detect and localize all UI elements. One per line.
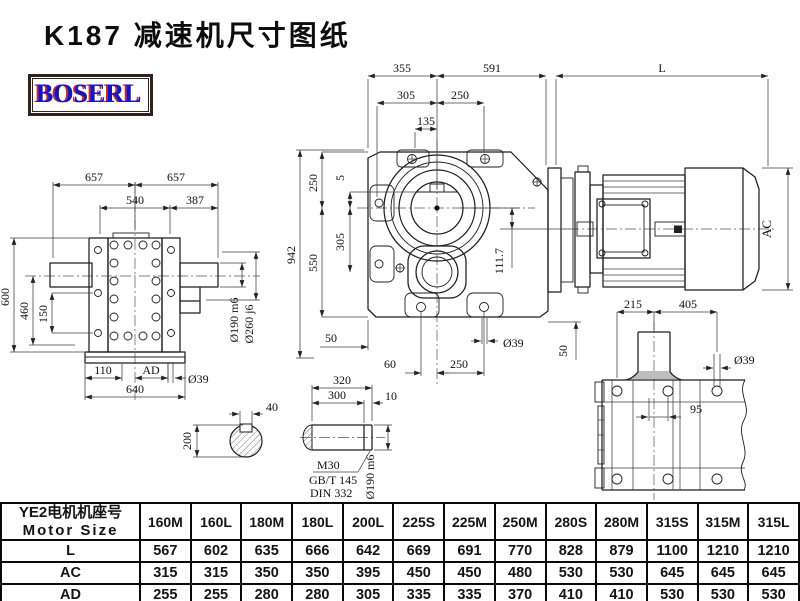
cell-l-225s: 669 — [393, 540, 444, 562]
dim-460: 460 — [17, 302, 31, 320]
label-din332: DIN 332 — [310, 486, 352, 500]
label-m30: M30 — [317, 458, 340, 472]
cell-ac-280m: 530 — [596, 562, 647, 584]
cell-ad-315m: 530 — [698, 584, 749, 601]
brand-logo: BOSERL — [28, 74, 153, 116]
column-header-315s: 315S — [647, 503, 698, 540]
row-label-ad: AD — [1, 584, 140, 601]
cell-ad-180m: 280 — [241, 584, 292, 601]
shaft-section-view: 40 200 — [180, 400, 278, 457]
dim-95: 95 — [690, 402, 702, 416]
table-row-ac: AC31531535035039545045048053053064564564… — [1, 562, 799, 584]
dim-387: 387 — [186, 193, 204, 207]
dim-550: 550 — [306, 254, 320, 272]
dim-200: 200 — [180, 432, 194, 450]
column-header-180m: 180M — [241, 503, 292, 540]
cell-ad-225m: 335 — [444, 584, 495, 601]
dim-250-top: 250 — [451, 88, 469, 102]
cell-l-315s: 1100 — [647, 540, 698, 562]
dim-5: 5 — [333, 175, 347, 181]
dim-ad: AD — [142, 363, 160, 377]
dim-300: 300 — [328, 388, 346, 402]
cell-l-180l: 666 — [292, 540, 343, 562]
motor-view: AC — [568, 166, 793, 293]
column-header-200l: 200L — [343, 503, 394, 540]
side-view: 657 657 540 387 600 460 150 110 AD 640 Ø… — [0, 170, 260, 400]
cell-ac-315l: 645 — [748, 562, 799, 584]
cell-ad-160l: 255 — [191, 584, 242, 601]
cell-l-225m: 691 — [444, 540, 495, 562]
cell-ad-200l: 305 — [343, 584, 394, 601]
dim-591: 591 — [483, 61, 501, 75]
dim-657-right: 657 — [167, 170, 185, 184]
cell-ac-160m: 315 — [140, 562, 191, 584]
dim-dia39-side: Ø39 — [188, 372, 209, 386]
dim-dia39-front: Ø39 — [503, 336, 524, 350]
cell-ad-315l: 530 — [748, 584, 799, 601]
size-table: YE2电机机座号Motor Size160M160L180M180L200L22… — [0, 502, 800, 601]
dim-dia190-shaft: Ø190 m6 — [363, 455, 377, 500]
brand-logo-text: BOSERL — [36, 79, 142, 108]
cell-ac-180m: 350 — [241, 562, 292, 584]
label-gbt145: GB/T 145 — [309, 473, 357, 487]
cell-l-160l: 602 — [191, 540, 242, 562]
dim-50-right: 50 — [556, 345, 570, 357]
cell-ac-250m: 480 — [495, 562, 546, 584]
cell-ad-315s: 530 — [647, 584, 698, 601]
cell-ad-250m: 370 — [495, 584, 546, 601]
row-label-l: L — [1, 540, 140, 562]
dim-305-left: 305 — [333, 233, 347, 251]
table-row-l: L567602635666642669691770828879110012101… — [1, 540, 799, 562]
front-view: 355 591 L 305 250 135 942 250 550 5 305 … — [284, 61, 768, 385]
cell-ac-200l: 395 — [343, 562, 394, 584]
dim-657-left: 657 — [85, 170, 103, 184]
dim-405: 405 — [679, 297, 697, 311]
cell-ad-280m: 410 — [596, 584, 647, 601]
cell-ac-315m: 645 — [698, 562, 749, 584]
dim-640: 640 — [126, 382, 144, 396]
column-header-315m: 315M — [698, 503, 749, 540]
column-header-180l: 180L — [292, 503, 343, 540]
cell-ad-280s: 410 — [546, 584, 597, 601]
front-view-dims — [296, 76, 768, 376]
dim-40: 40 — [266, 400, 278, 414]
cell-ac-180l: 350 — [292, 562, 343, 584]
cell-ac-225m: 450 — [444, 562, 495, 584]
dim-135: 135 — [417, 114, 435, 128]
row-label-ac: AC — [1, 562, 140, 584]
dim-dia260-side: Ø260 j6 — [242, 305, 256, 344]
header-motor-size: YE2电机机座号Motor Size — [1, 503, 140, 540]
column-header-225m: 225M — [444, 503, 495, 540]
plan-dims — [617, 312, 731, 421]
dim-942: 942 — [284, 246, 298, 264]
column-header-160l: 160L — [191, 503, 242, 540]
column-header-250m: 250M — [495, 503, 546, 540]
cell-ad-160m: 255 — [140, 584, 191, 601]
cell-ad-225s: 335 — [393, 584, 444, 601]
table-row-ad: AD25525528028030533533537041041053053053… — [1, 584, 799, 601]
cell-ac-280s: 530 — [546, 562, 597, 584]
dim-dia39-plan: Ø39 — [734, 353, 755, 367]
dim-250-left: 250 — [306, 174, 320, 192]
dim-600: 600 — [0, 288, 12, 306]
drawing-sheet: 657 657 540 387 600 460 150 110 AD 640 Ø… — [0, 0, 800, 601]
dim-110: 110 — [94, 363, 112, 377]
column-header-315l: 315L — [748, 503, 799, 540]
shaft-detail-view: 320 300 10 M30 GB/T 145 DIN 332 Ø190 m6 — [300, 373, 397, 500]
dim-AC: AC — [759, 220, 774, 238]
header-motor-size-en: Motor Size — [2, 522, 139, 539]
column-header-280s: 280S — [546, 503, 597, 540]
dim-dia190-side: Ø190 m6 — [227, 298, 241, 343]
cell-l-315m: 1210 — [698, 540, 749, 562]
cell-ac-225s: 450 — [393, 562, 444, 584]
dim-215: 215 — [624, 297, 642, 311]
dim-111-7: 111.7 — [492, 248, 506, 274]
column-header-225s: 225S — [393, 503, 444, 540]
dim-60: 60 — [384, 357, 396, 371]
cell-l-280s: 828 — [546, 540, 597, 562]
cell-ad-180l: 280 — [292, 584, 343, 601]
dim-320: 320 — [333, 373, 351, 387]
dim-250-bottom: 250 — [450, 357, 468, 371]
cell-l-200l: 642 — [343, 540, 394, 562]
dim-150: 150 — [36, 305, 50, 323]
cell-ac-315s: 645 — [647, 562, 698, 584]
dim-355: 355 — [393, 61, 411, 75]
column-header-160m: 160M — [140, 503, 191, 540]
plan-view: 215 405 Ø39 95 — [595, 297, 755, 500]
cell-l-160m: 567 — [140, 540, 191, 562]
header-motor-size-cn: YE2电机机座号 — [2, 504, 139, 521]
dim-10: 10 — [385, 389, 397, 403]
cell-l-180m: 635 — [241, 540, 292, 562]
cell-ac-160l: 315 — [191, 562, 242, 584]
cell-l-280m: 879 — [596, 540, 647, 562]
column-header-280m: 280M — [596, 503, 647, 540]
table-header-row: YE2电机机座号Motor Size160M160L180M180L200L22… — [1, 503, 799, 540]
dim-50-bottom: 50 — [325, 331, 337, 345]
dim-305-top: 305 — [397, 88, 415, 102]
brand-logo-frame: BOSERL — [32, 78, 149, 112]
cell-l-315l: 1210 — [748, 540, 799, 562]
page-title: K187 减速机尺寸图纸 — [44, 14, 351, 54]
cell-l-250m: 770 — [495, 540, 546, 562]
dim-L: L — [658, 61, 665, 75]
dim-540: 540 — [126, 193, 144, 207]
